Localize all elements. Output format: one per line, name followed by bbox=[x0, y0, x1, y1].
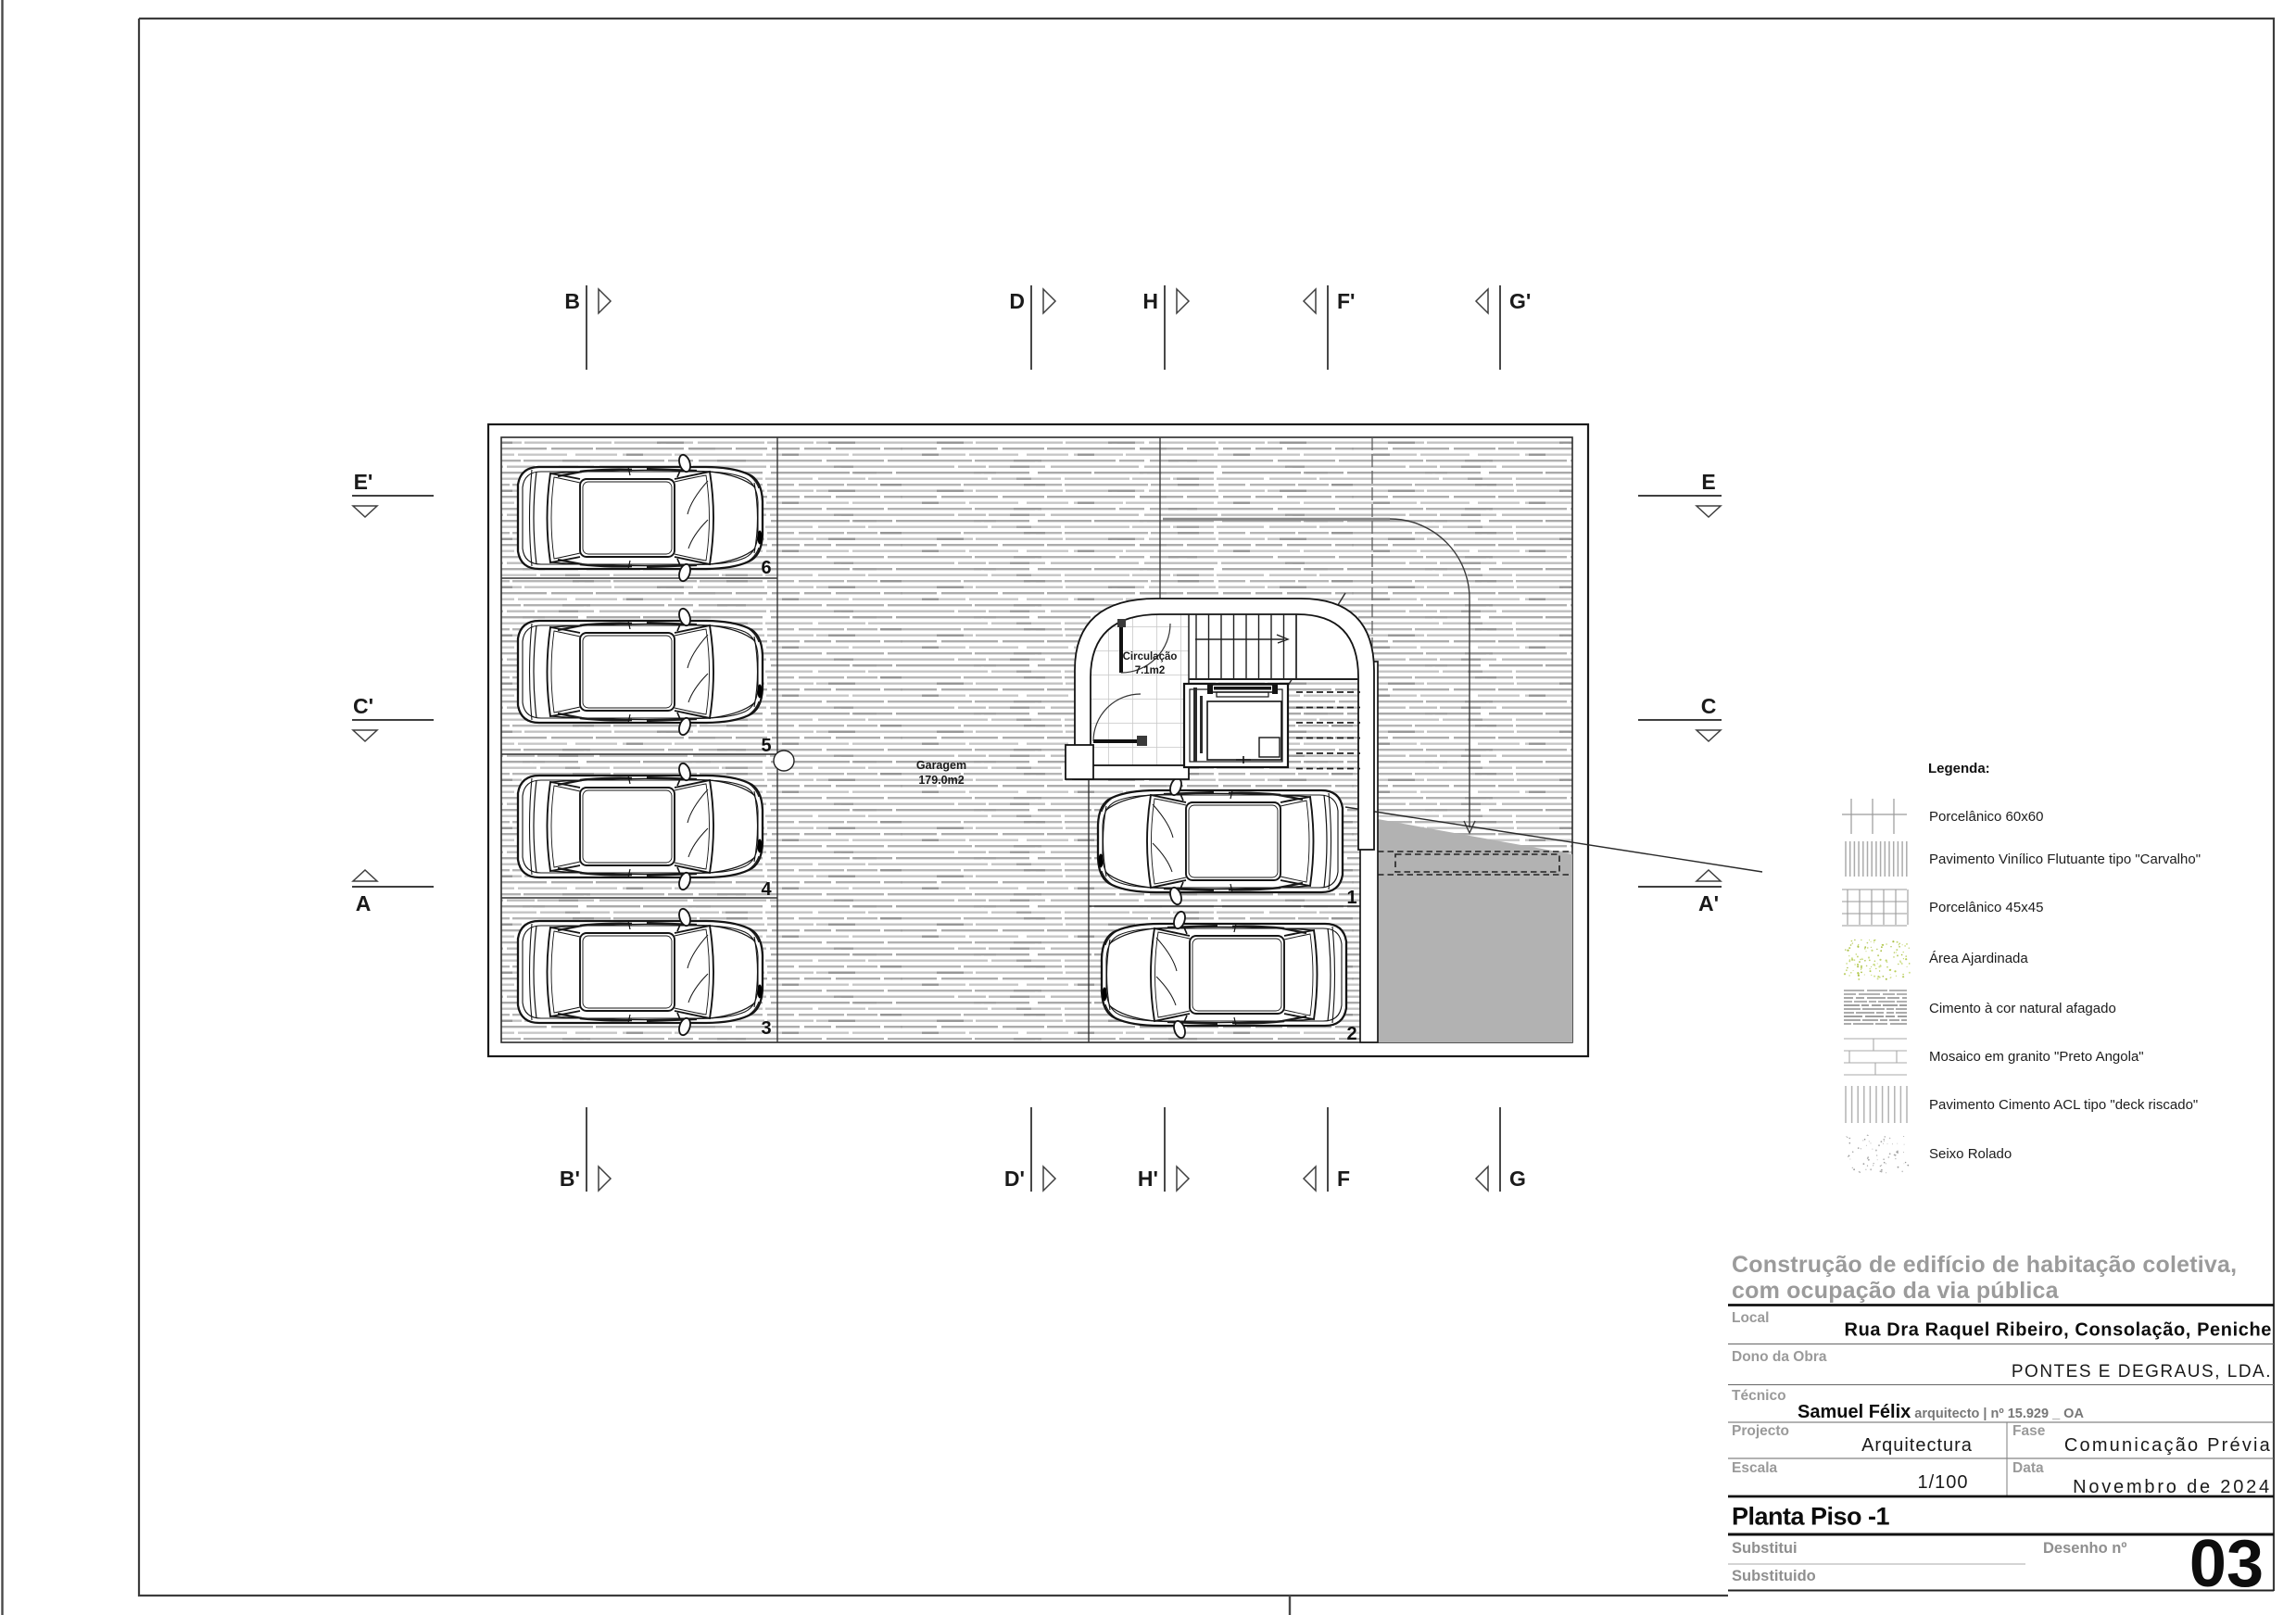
svg-text:Arquitectura: Arquitectura bbox=[1861, 1435, 1973, 1456]
svg-text:Garagem: Garagem bbox=[916, 759, 966, 772]
svg-text:03: 03 bbox=[2189, 1527, 2264, 1601]
svg-text:Novembro de 2024: Novembro de 2024 bbox=[2073, 1477, 2272, 1497]
svg-text:D: D bbox=[1009, 289, 1025, 313]
svg-text:7.1m2: 7.1m2 bbox=[1135, 665, 1166, 676]
svg-text:H: H bbox=[1142, 289, 1158, 313]
svg-text:Projecto: Projecto bbox=[1732, 1423, 1789, 1439]
svg-text:A': A' bbox=[1698, 891, 1719, 915]
svg-text:179.0m2: 179.0m2 bbox=[918, 774, 964, 787]
svg-text:F: F bbox=[1337, 1167, 1350, 1191]
svg-text:Planta Piso -1: Planta Piso -1 bbox=[1732, 1503, 1890, 1531]
svg-text:com ocupação da via pública: com ocupação da via pública bbox=[1732, 1278, 2060, 1304]
svg-text:Fase: Fase bbox=[2012, 1423, 2046, 1439]
svg-text:B': B' bbox=[560, 1167, 580, 1191]
svg-text:Pavimento Vinílico Flutuante t: Pavimento Vinílico Flutuante tipo "Carva… bbox=[1929, 852, 2201, 867]
svg-text:2: 2 bbox=[1346, 1024, 1356, 1044]
svg-text:E: E bbox=[1701, 470, 1715, 494]
svg-text:E': E' bbox=[354, 470, 373, 494]
svg-text:C: C bbox=[1701, 694, 1717, 718]
svg-text:Escala: Escala bbox=[1732, 1460, 1778, 1476]
svg-text:Circulação: Circulação bbox=[1123, 651, 1178, 662]
svg-text:6: 6 bbox=[761, 558, 771, 578]
svg-text:Data: Data bbox=[2012, 1460, 2044, 1476]
svg-text:Rua Dra Raquel Ribeiro, Consol: Rua Dra Raquel Ribeiro, Consolação, Peni… bbox=[1845, 1320, 2272, 1341]
svg-text:A: A bbox=[356, 891, 372, 915]
svg-text:1/100: 1/100 bbox=[1917, 1472, 1968, 1493]
svg-text:H': H' bbox=[1138, 1167, 1158, 1191]
svg-text:Área Ajardinada: Área Ajardinada bbox=[1929, 951, 2028, 966]
svg-text:Porcelânico 60x60: Porcelânico 60x60 bbox=[1929, 809, 2043, 825]
svg-text:3: 3 bbox=[761, 1018, 771, 1039]
svg-text:Técnico: Técnico bbox=[1732, 1388, 1786, 1404]
svg-text:Substitui: Substitui bbox=[1732, 1540, 1798, 1557]
svg-text:G': G' bbox=[1509, 289, 1531, 313]
svg-text:Mosaico em granito "Preto Ango: Mosaico em granito "Preto Angola" bbox=[1929, 1049, 2144, 1065]
svg-text:PONTES E DEGRAUS, LDA.: PONTES E DEGRAUS, LDA. bbox=[2012, 1362, 2272, 1382]
svg-text:Legenda:: Legenda: bbox=[1928, 761, 1990, 776]
svg-text:C': C' bbox=[353, 694, 373, 718]
svg-text:G: G bbox=[1509, 1167, 1526, 1191]
svg-text:5: 5 bbox=[761, 736, 771, 756]
svg-text:Porcelânico 45x45: Porcelânico 45x45 bbox=[1929, 900, 2043, 915]
svg-text:Seixo Rolado: Seixo Rolado bbox=[1929, 1146, 2012, 1162]
svg-text:Comunicação Prévia: Comunicação Prévia bbox=[2064, 1435, 2272, 1456]
svg-text:4: 4 bbox=[761, 879, 772, 900]
svg-text:F': F' bbox=[1337, 289, 1356, 313]
svg-text:Cimento à cor natural afagado: Cimento à cor natural afagado bbox=[1929, 1001, 2116, 1016]
svg-text:Desenho nº: Desenho nº bbox=[2043, 1540, 2126, 1557]
svg-text:Dono da Obra: Dono da Obra bbox=[1732, 1349, 1827, 1365]
svg-text:Substituido: Substituido bbox=[1732, 1568, 1816, 1584]
svg-text:Pavimento Cimento ACL tipo "de: Pavimento Cimento ACL tipo "deck riscado… bbox=[1929, 1097, 2198, 1113]
svg-text:Construção de edifício de habi: Construção de edifício de habitação cole… bbox=[1732, 1252, 2237, 1278]
svg-text:1: 1 bbox=[1346, 888, 1356, 908]
svg-text:B: B bbox=[564, 289, 580, 313]
svg-text:D': D' bbox=[1004, 1167, 1025, 1191]
svg-text:Local: Local bbox=[1732, 1310, 1769, 1326]
